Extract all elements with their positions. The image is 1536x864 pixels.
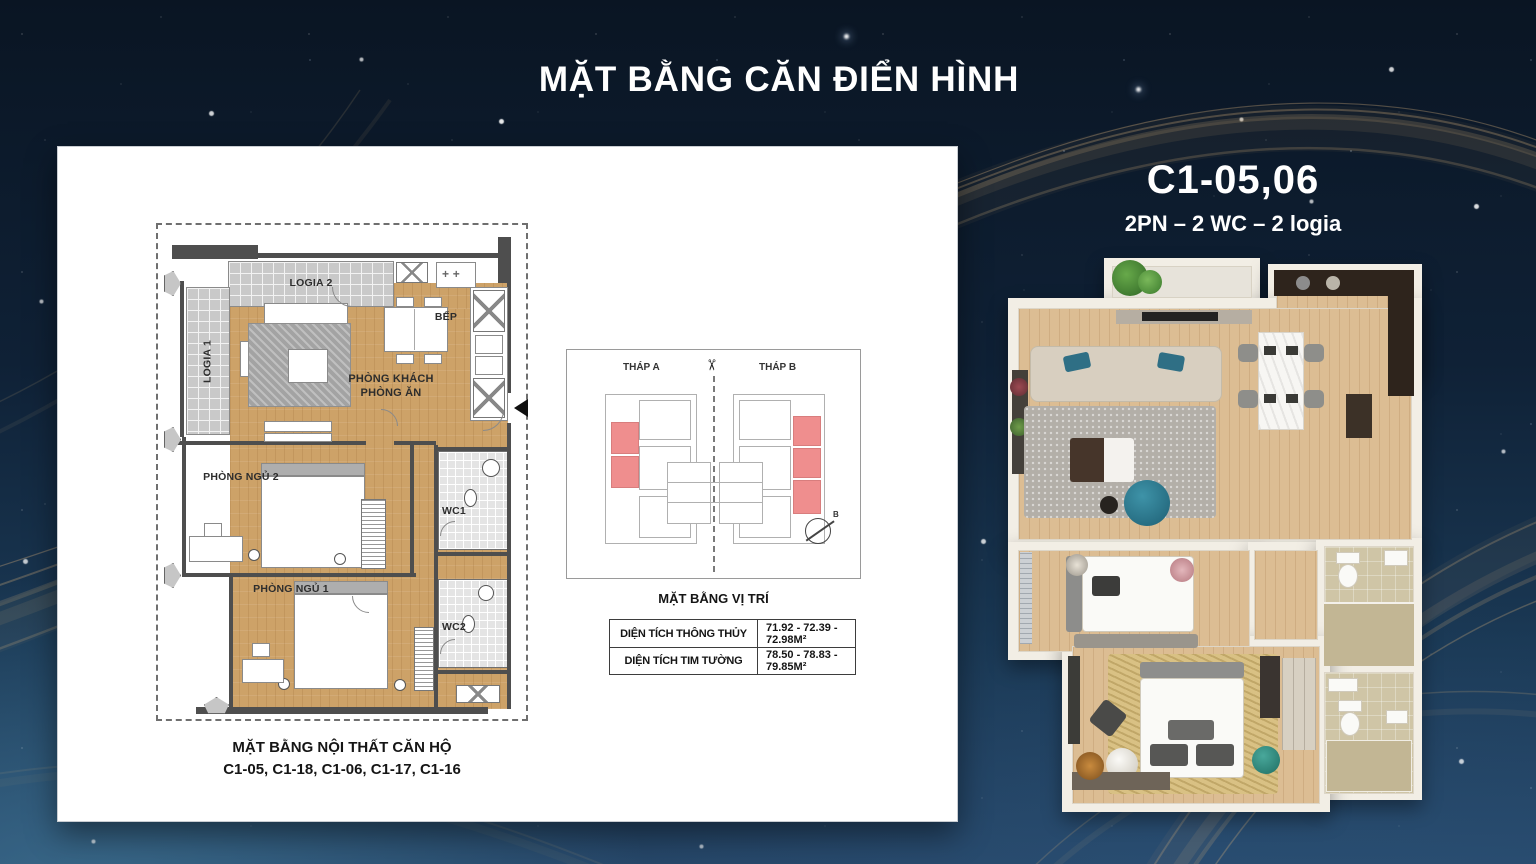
lamp-icon xyxy=(394,679,406,691)
bed-bedroom1 xyxy=(294,594,388,689)
bedroom2-tv-panel xyxy=(1068,656,1080,744)
apartment-2d-plan: + + xyxy=(156,223,528,721)
room-label-bedroom2: PHÒNG NGỦ 2 xyxy=(186,471,296,484)
wall xyxy=(438,552,510,556)
dining-chair xyxy=(1238,344,1258,362)
area-value-thong-thuy: 71.92 - 72.39 - 72.98M² xyxy=(758,620,855,647)
tv xyxy=(1142,312,1218,321)
wardrobe xyxy=(361,499,386,569)
placemat xyxy=(1286,394,1298,403)
wardrobe xyxy=(1282,658,1316,750)
kitchen-sink xyxy=(1326,276,1340,290)
page-title: MẶT BẰNG CĂN ĐIỂN HÌNH xyxy=(0,60,1536,100)
chair xyxy=(252,643,270,657)
room-label-wc1: WC1 xyxy=(442,505,472,518)
floor-plan-panel: + + xyxy=(57,146,958,822)
room-label-bedroom1: PHÒNG NGỦ 1 xyxy=(236,583,346,596)
wardrobe xyxy=(414,627,434,691)
location-plan: THÁP A ✂ THÁP B xyxy=(566,349,861,579)
wall xyxy=(438,670,510,674)
highlighted-unit xyxy=(793,448,821,478)
placemat xyxy=(1264,394,1276,403)
lamp-icon xyxy=(248,549,260,561)
dining-chair xyxy=(424,354,442,364)
render-3d-apartment xyxy=(1008,258,1422,812)
placemat xyxy=(1264,346,1276,355)
curtain xyxy=(1020,552,1032,644)
compass-label: B xyxy=(833,510,839,519)
wall xyxy=(196,707,488,714)
table-line xyxy=(414,309,415,350)
tall-cabinet xyxy=(1346,394,1372,438)
bathroom-sink xyxy=(1386,710,1408,724)
autumn-plant xyxy=(1076,752,1104,780)
wall xyxy=(507,423,511,709)
room-label-logia2: LOGIA 2 xyxy=(228,277,394,290)
bed-bedroom2 xyxy=(261,476,365,568)
cooktop xyxy=(1296,276,1310,290)
wc2-sink-icon xyxy=(478,585,494,601)
table-row: DIỆN TÍCH THÔNG THỦY 71.92 - 72.39 - 72.… xyxy=(610,620,855,647)
plan-caption-line1: MẶT BẰNG NỘI THẤT CĂN HỘ xyxy=(156,739,528,756)
tower-a-label: THÁP A xyxy=(623,362,660,373)
room-label-logia1: LOGIA 1 xyxy=(186,287,230,435)
scissors-icon: ✂ xyxy=(702,359,720,372)
wall xyxy=(438,447,510,451)
entry-arrow-icon xyxy=(514,399,528,417)
ottoman xyxy=(1124,480,1170,526)
wc1-sink-icon xyxy=(482,459,500,477)
toilet-tank xyxy=(1338,700,1362,712)
wall xyxy=(394,441,436,445)
flower-bouquet xyxy=(1170,558,1194,582)
highlighted-unit xyxy=(793,416,821,446)
area-label-tim-tuong: DIỆN TÍCH TIM TƯỜNG xyxy=(610,648,758,674)
room-label-dining: PHÒNG ĂN xyxy=(306,387,476,401)
unit-code: C1-05,06 xyxy=(1040,158,1426,203)
storage-hatch xyxy=(456,685,500,703)
area-table: DIỆN TÍCH THÔNG THỦY 71.92 - 72.39 - 72.… xyxy=(609,619,856,675)
desk xyxy=(189,536,243,562)
side-table xyxy=(1100,496,1118,514)
bed2-pillow xyxy=(1150,744,1188,766)
bed2-headboard xyxy=(1140,662,1244,678)
shower-area xyxy=(1324,602,1414,666)
wall xyxy=(172,245,258,259)
bed1-rug xyxy=(1074,634,1198,648)
wardrobe-dark-panel xyxy=(1260,656,1280,718)
area-value-tim-tuong: 78.50 - 78.83 - 79.85M² xyxy=(758,648,855,674)
hall-floor xyxy=(1254,550,1318,640)
closet-icon xyxy=(396,262,428,283)
round-pillow xyxy=(1066,554,1088,576)
bed1-pillow xyxy=(1092,576,1120,596)
highlighted-unit xyxy=(611,422,639,454)
plan-caption-line2: C1-05, C1-18, C1-06, C1-17, C1-16 xyxy=(156,761,528,778)
room-label-wc2: WC2 xyxy=(442,621,472,634)
wall xyxy=(410,445,414,575)
plant xyxy=(1010,378,1028,396)
wall xyxy=(256,253,502,258)
bed2-pillow xyxy=(1196,744,1234,766)
sink-box xyxy=(475,356,503,375)
bathroom-shelf xyxy=(1328,678,1358,692)
wall xyxy=(229,577,233,709)
corridor-cell xyxy=(667,462,711,524)
chair xyxy=(204,523,222,537)
placemat xyxy=(1286,346,1298,355)
unit-heading: C1-05,06 2PN – 2 WC – 2 logia xyxy=(1040,158,1426,237)
dining-chair xyxy=(424,297,442,307)
bed2-pillow xyxy=(1168,720,1214,740)
corridor-line xyxy=(667,482,763,483)
teal-ball-decor xyxy=(1252,746,1280,774)
unit-cell xyxy=(739,400,791,440)
highlighted-unit xyxy=(793,480,821,514)
wall xyxy=(498,237,511,283)
area-label-thong-thuy: DIỆN TÍCH THÔNG THỦY xyxy=(610,620,758,647)
wall xyxy=(184,573,416,577)
kitchen-counter xyxy=(1388,296,1414,396)
sofa xyxy=(1030,346,1222,402)
dining-chair xyxy=(1238,390,1258,408)
dining-chair xyxy=(396,354,414,364)
room-label-living: PHÒNG KHÁCH xyxy=(306,373,476,387)
toilet-icon xyxy=(1338,564,1358,588)
cut-line xyxy=(713,376,715,572)
kitchen-counter xyxy=(1274,270,1414,296)
table-row: DIỆN TÍCH TIM TƯỜNG 78.50 - 78.83 - 79.8… xyxy=(610,647,855,674)
dining-chair xyxy=(1304,390,1324,408)
highlighted-unit xyxy=(611,456,639,488)
counter-hatch xyxy=(473,290,505,332)
lamp-icon xyxy=(334,553,346,565)
dining-chair xyxy=(1304,344,1324,362)
coffee-table-top xyxy=(1104,438,1134,482)
glass-shower xyxy=(1326,740,1412,792)
corridor-line xyxy=(667,502,763,503)
toilet-tank xyxy=(1336,552,1360,564)
toilet-icon xyxy=(1340,712,1360,736)
wall xyxy=(180,281,184,437)
unit-spec: 2PN – 2 WC – 2 logia xyxy=(1040,211,1426,237)
corridor-cell xyxy=(719,462,763,524)
room-label-bep: BẾP xyxy=(426,311,466,324)
sideboard xyxy=(264,433,332,442)
plant xyxy=(1138,270,1162,294)
dining-chair xyxy=(396,297,414,307)
desk xyxy=(242,659,284,683)
slide: MẶT BẰNG CĂN ĐIỂN HÌNH C1-05,06 2PN – 2 … xyxy=(0,0,1536,864)
tower-b-label: THÁP B xyxy=(759,362,796,373)
wall xyxy=(182,437,186,577)
location-caption: MẶT BẰNG VỊ TRÍ xyxy=(566,591,861,606)
unit-cell xyxy=(639,400,691,440)
sideboard xyxy=(264,421,332,432)
bathroom-sink xyxy=(1384,550,1408,566)
sink-box xyxy=(475,335,503,354)
